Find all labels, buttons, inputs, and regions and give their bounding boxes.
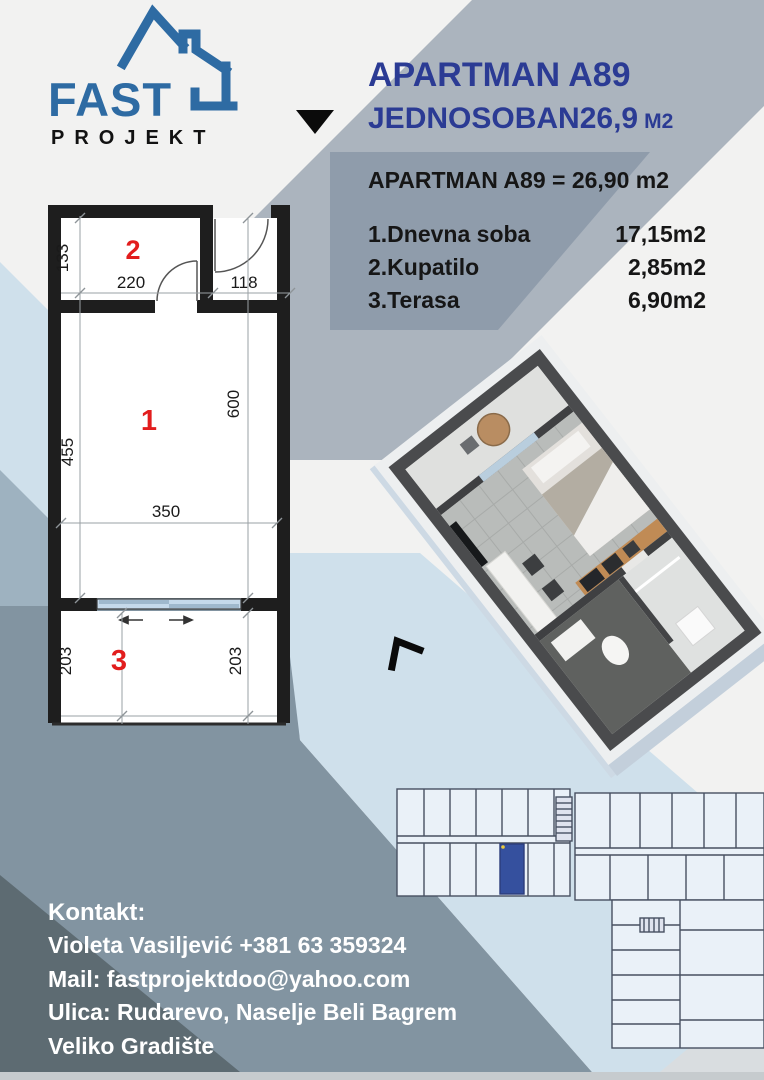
stairwell-hatch	[556, 797, 572, 841]
dim-220: 220	[117, 273, 145, 292]
contact-street: Ulica: Rudarevo, Naselje Beli Bagrem	[48, 996, 508, 1030]
flyer-page: FAST PROJEKT APARTMAN A89 JEDNOSOBAN26,9…	[0, 0, 764, 1080]
contact-block: Kontakt: Violeta Vasiljević +381 63 3593…	[48, 896, 508, 1063]
dim-600: 600	[224, 390, 243, 418]
contact-city: Veliko Gradište	[48, 1030, 508, 1064]
stairwell-hatch	[640, 918, 664, 932]
room-number-terrace: 3	[111, 645, 127, 677]
unit-door-marker	[501, 845, 505, 849]
contact-email: Mail: fastprojektdoo@yahoo.com	[48, 963, 508, 997]
highlighted-unit-a89	[500, 844, 524, 894]
render-3d	[370, 335, 764, 780]
dim-350: 350	[152, 502, 180, 521]
contact-heading: Kontakt:	[48, 896, 508, 929]
room-number-bathroom: 2	[125, 235, 140, 265]
dim-455: 455	[58, 438, 77, 466]
north-arrow-icon	[392, 641, 420, 667]
dim-203-left: 203	[56, 647, 75, 675]
room-number-living: 1	[141, 405, 157, 437]
dim-203-right: 203	[226, 647, 245, 675]
dim-133: 133	[53, 244, 72, 272]
contact-person-phone: Violeta Vasiljević +381 63 359324	[48, 929, 508, 963]
dim-118: 118	[230, 273, 257, 292]
floorplan-2d: 133 220 118 455 600 350 203 203 2 1 3	[48, 205, 295, 724]
